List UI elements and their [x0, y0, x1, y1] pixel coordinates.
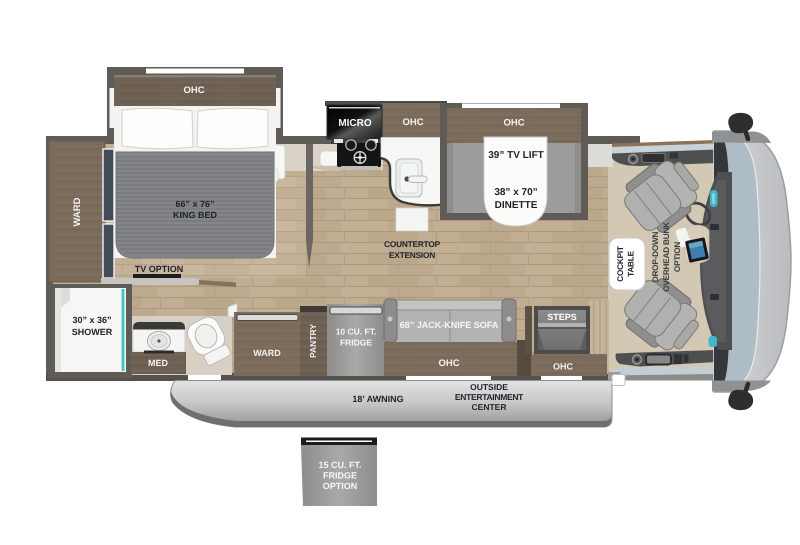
svg-text:38” x 70”: 38” x 70” — [494, 187, 537, 198]
svg-text:OHC: OHC — [503, 118, 524, 129]
svg-text:39” TV LIFT: 39” TV LIFT — [488, 150, 544, 161]
svg-text:WARD: WARD — [72, 197, 83, 226]
svg-text:OHC: OHC — [553, 362, 574, 372]
svg-text:10 CU. FT.: 10 CU. FT. — [336, 327, 377, 337]
svg-text:FRIDGE: FRIDGE — [323, 471, 357, 481]
svg-text:STEPS: STEPS — [547, 312, 577, 322]
svg-text:TABLE: TABLE — [627, 250, 636, 276]
svg-text:COUNTERTOP: COUNTERTOP — [384, 239, 441, 249]
svg-text:WARD: WARD — [253, 348, 281, 358]
svg-text:MED: MED — [148, 358, 169, 368]
svg-text:TV OPTION: TV OPTION — [135, 264, 184, 274]
svg-text:ENTERTAINMENT: ENTERTAINMENT — [455, 392, 524, 402]
svg-text:OPTION: OPTION — [673, 242, 682, 272]
svg-text:18’ AWNING: 18’ AWNING — [352, 394, 403, 404]
svg-text:DROP-DOWN: DROP-DOWN — [651, 231, 660, 282]
svg-text:OVERHEAD BUNK: OVERHEAD BUNK — [662, 222, 671, 292]
svg-text:OHC: OHC — [402, 117, 423, 128]
svg-text:CENTER: CENTER — [472, 402, 507, 412]
svg-text:FRIDGE: FRIDGE — [340, 338, 372, 348]
svg-text:68” JACK-KNIFE SOFA: 68” JACK-KNIFE SOFA — [400, 320, 499, 330]
svg-text:MICRO: MICRO — [338, 118, 372, 129]
svg-text:OUTSIDE: OUTSIDE — [470, 382, 508, 392]
svg-text:30” x 36”: 30” x 36” — [72, 315, 111, 325]
svg-text:OPTION: OPTION — [323, 481, 358, 491]
svg-text:15 CU. FT.: 15 CU. FT. — [318, 460, 361, 470]
svg-text:OHC: OHC — [183, 85, 204, 96]
svg-text:DINETTE: DINETTE — [495, 200, 538, 211]
svg-text:SHOWER: SHOWER — [72, 327, 113, 337]
svg-text:KING BED: KING BED — [173, 210, 218, 220]
svg-text:66” x 76”: 66” x 76” — [175, 199, 214, 209]
svg-text:EXTENSION: EXTENSION — [389, 250, 435, 260]
svg-text:PANTRY: PANTRY — [308, 324, 318, 358]
svg-text:COCKPIT: COCKPIT — [616, 246, 625, 282]
svg-text:OHC: OHC — [438, 358, 459, 369]
